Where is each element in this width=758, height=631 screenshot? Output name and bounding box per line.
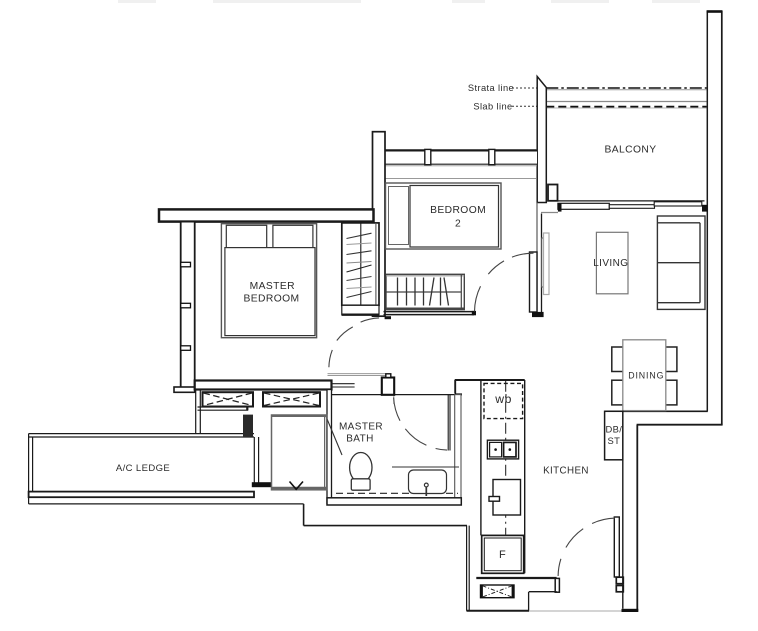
svg-text:DB/: DB/ <box>605 423 622 434</box>
svg-text:Slab line: Slab line <box>473 102 512 112</box>
svg-text:DINING: DINING <box>628 370 664 380</box>
svg-text:MASTER: MASTER <box>339 422 383 433</box>
svg-text:A/C LEDGE: A/C LEDGE <box>116 463 170 474</box>
svg-text:BEDROOM: BEDROOM <box>430 205 486 216</box>
svg-text:BEDROOM: BEDROOM <box>243 293 299 304</box>
svg-text:MASTER: MASTER <box>250 281 295 292</box>
svg-text:LIVING: LIVING <box>593 258 628 269</box>
svg-text:KITCHEN: KITCHEN <box>543 465 589 476</box>
svg-text:BATH: BATH <box>346 434 374 445</box>
svg-text:ST: ST <box>608 435 621 446</box>
svg-text:wb: wb <box>494 392 512 406</box>
svg-text:BALCONY: BALCONY <box>604 145 656 156</box>
svg-text:Strata line: Strata line <box>468 83 514 93</box>
svg-text:2: 2 <box>455 219 461 230</box>
svg-text:F: F <box>499 549 506 561</box>
